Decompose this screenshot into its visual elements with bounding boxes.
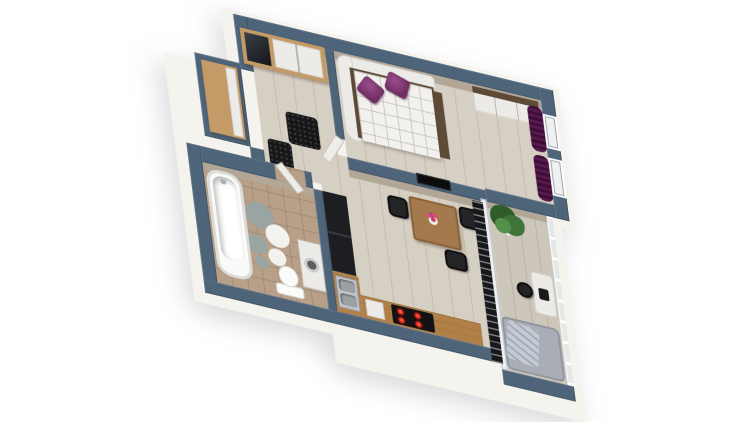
mirror [244,32,272,66]
washer-door [303,256,320,274]
hob-burner-1 [396,307,405,317]
desk-items [538,288,549,302]
floorplan-scene [0,0,750,422]
hob-burner-3 [397,316,406,326]
sink-bowl-1 [338,278,355,293]
kitchen-sink [335,275,361,313]
sink-bowl-2 [340,293,357,308]
hob-burner-2 [413,311,422,321]
pink-flowers [425,210,440,225]
hob-burner-4 [414,320,423,330]
bathtub-inner [212,174,247,263]
